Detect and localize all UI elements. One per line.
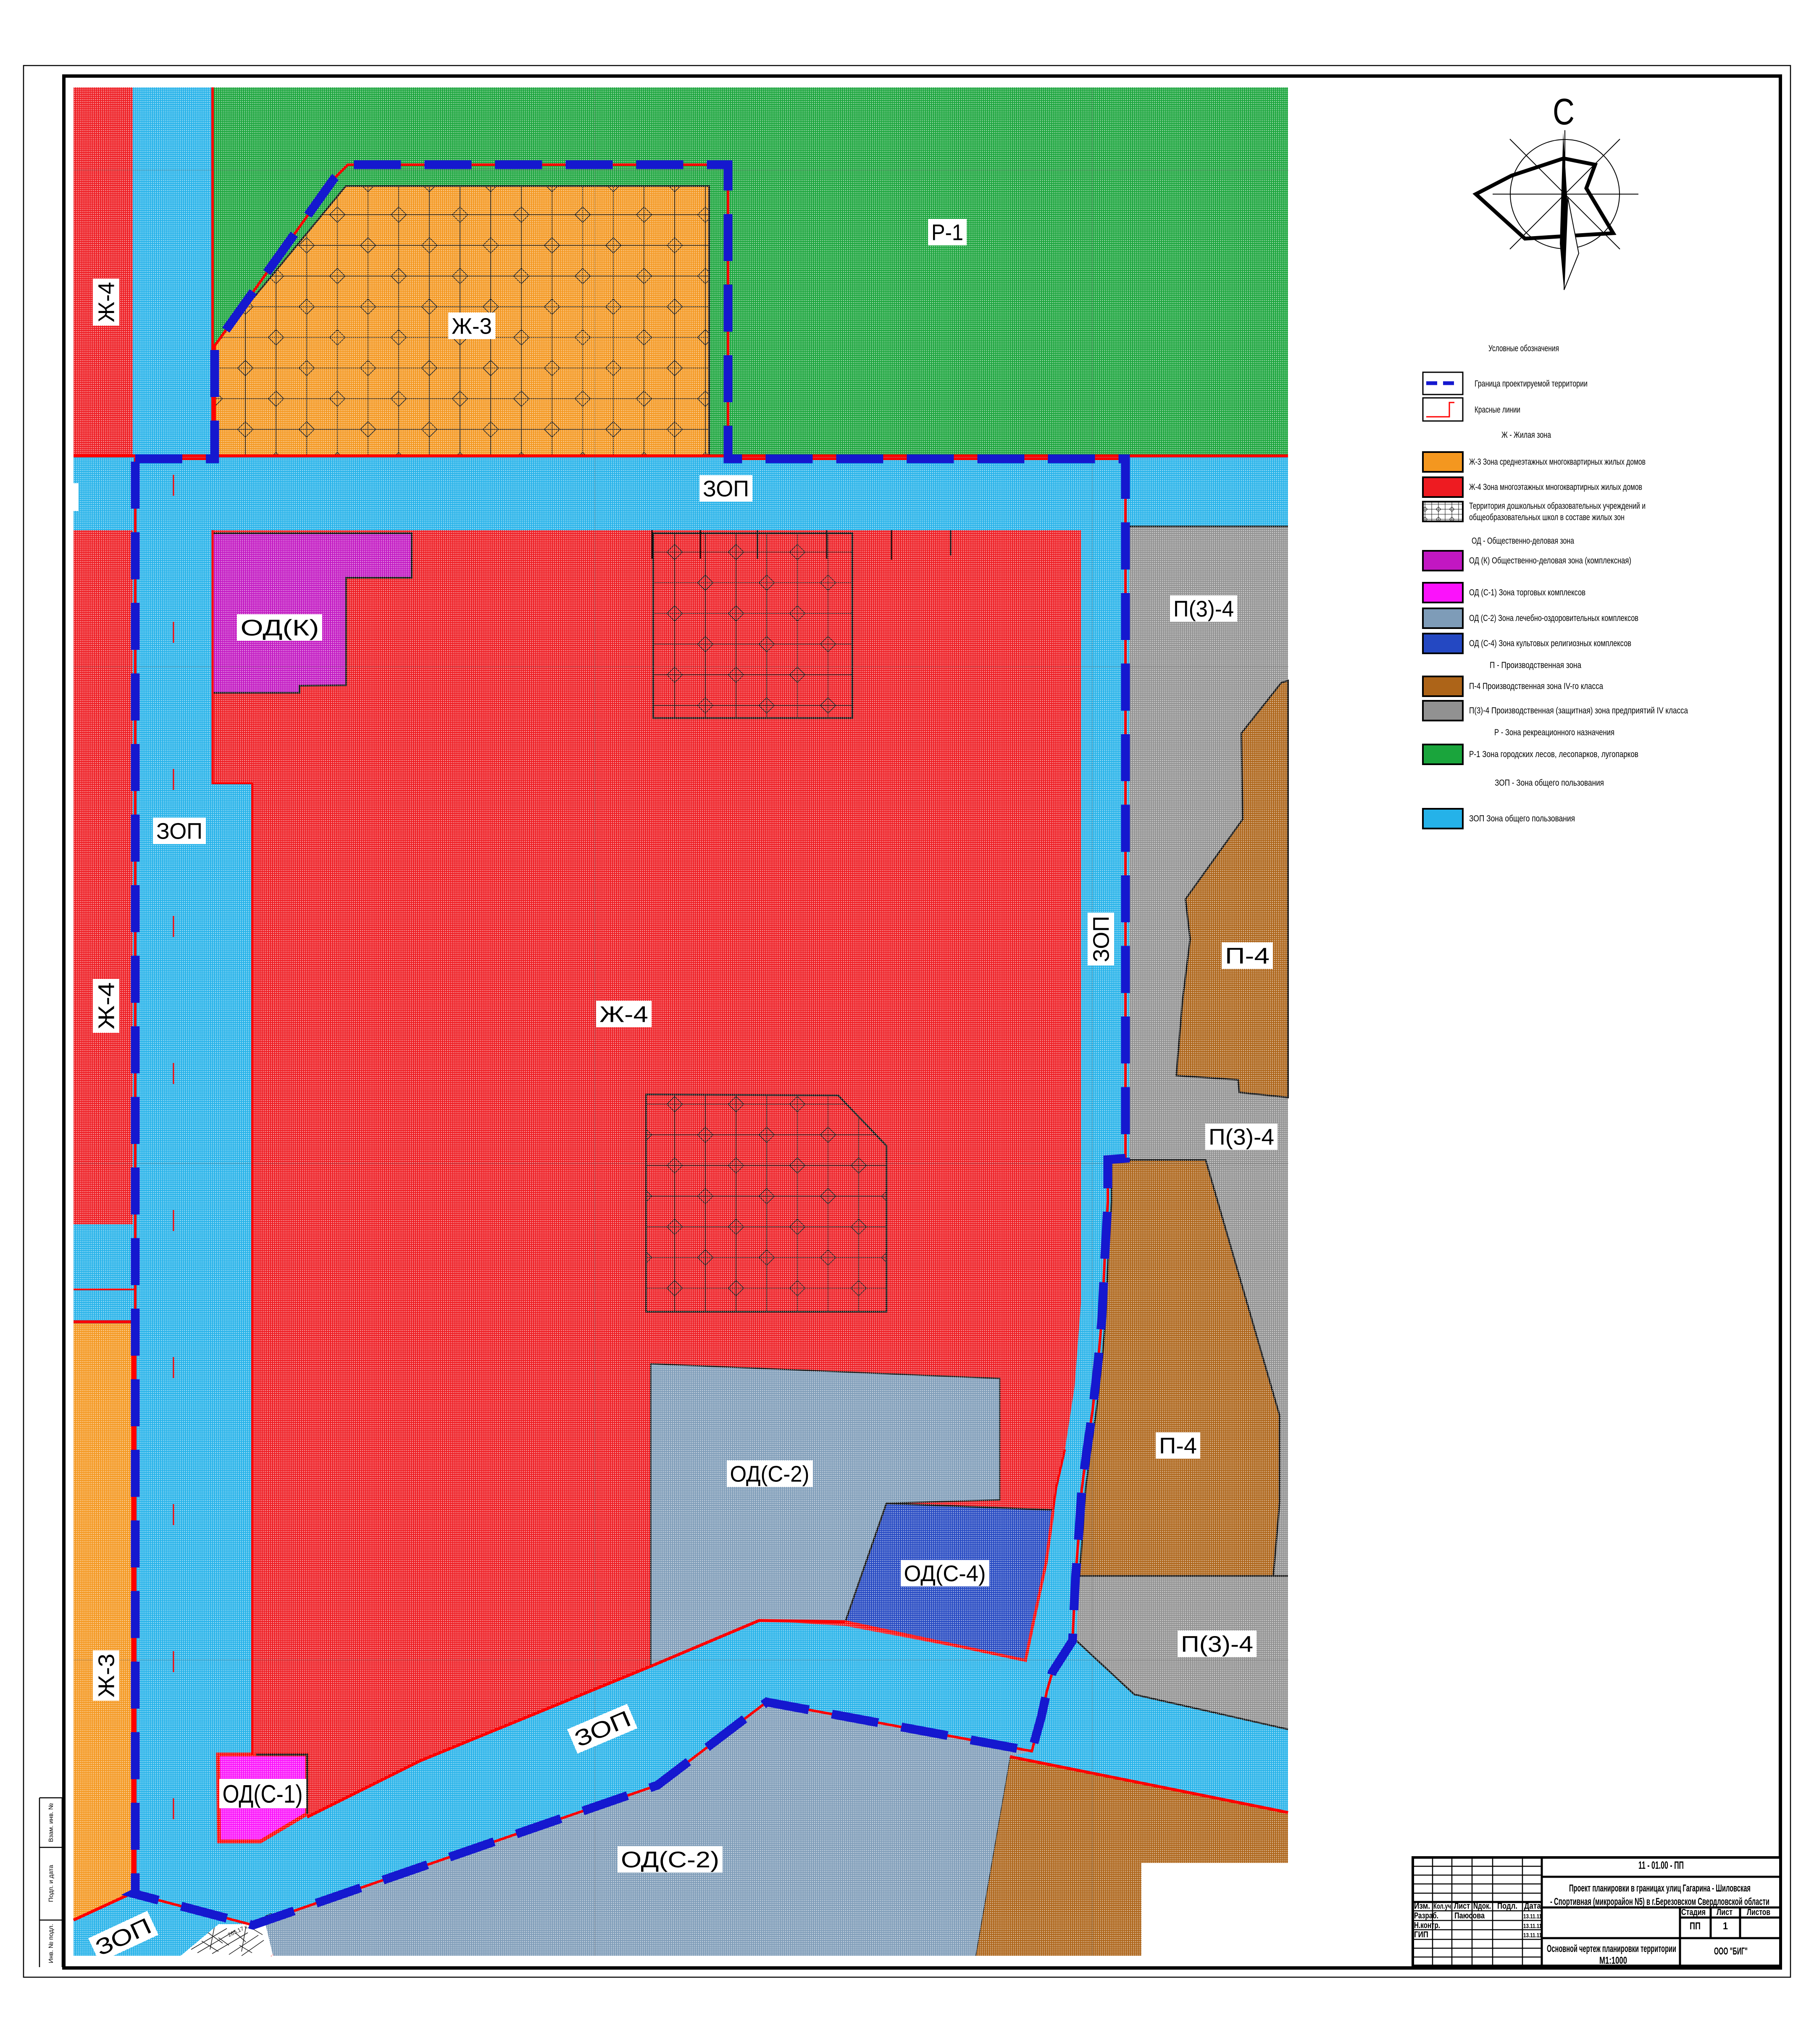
svg-text:Условные обозначения: Условные обозначения — [1488, 344, 1559, 353]
svg-text:ОД(К): ОД(К) — [241, 615, 319, 640]
svg-text:ОД(С-1): ОД(С-1) — [223, 1780, 303, 1808]
svg-text:ОД - Общественно-деловая зона: ОД - Общественно-деловая зона — [1472, 536, 1574, 546]
svg-text:ЗОП: ЗОП — [1088, 916, 1114, 962]
svg-text:Ж-4: Ж-4 — [599, 1002, 648, 1027]
svg-text:ОД(С-2): ОД(С-2) — [621, 1847, 719, 1872]
svg-text:13.11.11: 13.11.11 — [1523, 1913, 1542, 1920]
svg-text:Р-1: Р-1 — [931, 220, 963, 245]
svg-text:ОД(С-4): ОД(С-4) — [904, 1561, 986, 1586]
svg-text:Листов: Листов — [1747, 1907, 1770, 1917]
svg-text:П-4: П-4 — [1159, 1433, 1197, 1458]
svg-text:П - Производственная зона: П - Производственная зона — [1490, 660, 1581, 670]
svg-text:П(3)-4 Производственная (защит: П(3)-4 Производственная (защитная) зона … — [1469, 706, 1688, 716]
svg-text:- Спортивная (микрорайон N5) в: - Спортивная (микрорайон N5) в г.Березов… — [1550, 1896, 1769, 1907]
svg-text:Ж-3: Ж-3 — [452, 313, 492, 339]
svg-text:Р - Зона рекреационного назнач: Р - Зона рекреационного назначения — [1494, 728, 1614, 737]
svg-text:ГИП: ГИП — [1414, 1930, 1428, 1939]
svg-text:ОД (К) Общественно-деловая зо: ОД (К) Общественно-деловая зона (комплек… — [1469, 556, 1631, 566]
svg-text:Р-1 Зона городских лесов, лесо: Р-1 Зона городских лесов, лесопарков, лу… — [1469, 750, 1638, 759]
svg-text:П-4 Производственная зона IV-г: П-4 Производственная зона IV-го класса — [1469, 681, 1603, 691]
svg-text:ПП: ПП — [1690, 1920, 1701, 1932]
svg-text:ОД (С-4) Зона культовых религи: ОД (С-4) Зона культовых религиозных комп… — [1469, 639, 1631, 648]
svg-text:Ж-3: Ж-3 — [94, 1654, 119, 1697]
svg-text:ЗОП: ЗОП — [156, 818, 202, 844]
svg-text:Инв. № подл.: Инв. № подл. — [47, 1924, 55, 1963]
svg-text:ЗОП Зона общего пользования: ЗОП Зона общего пользования — [1469, 814, 1575, 823]
svg-text:Ж - Жилая зона: Ж - Жилая зона — [1501, 430, 1551, 440]
svg-text:Основной чертеж планировки тер: Основной чертеж планировки территории — [1547, 1943, 1676, 1955]
svg-text:П(3)-4: П(3)-4 — [1209, 1124, 1274, 1150]
svg-text:П(3)-4: П(3)-4 — [1181, 1631, 1253, 1657]
svg-text:Н.контр.: Н.контр. — [1414, 1921, 1440, 1930]
svg-text:Изм.: Изм. — [1414, 1902, 1430, 1911]
svg-text:общеобразовательных школ в сос: общеобразовательных школ в составе жилых… — [1469, 513, 1625, 522]
svg-text:13.11.11: 13.11.11 — [1523, 1932, 1542, 1939]
svg-text:Кол.уч: Кол.уч — [1433, 1902, 1451, 1910]
svg-text:11 - 01.00 - ПП: 11 - 01.00 - ПП — [1638, 1860, 1684, 1871]
svg-text:Дата: Дата — [1524, 1902, 1541, 1911]
svg-text:Красные линии: Красные линии — [1475, 405, 1520, 415]
svg-text:Подп. и дата: Подп. и дата — [47, 1865, 55, 1902]
svg-text:П(3)-4: П(3)-4 — [1173, 596, 1234, 621]
svg-text:Nдок.: Nдок. — [1473, 1902, 1491, 1911]
svg-text:C: C — [1553, 91, 1575, 132]
svg-text:Проект планировки в границах у: Проект планировки в границах улиц Гагари… — [1569, 1883, 1751, 1894]
svg-text:П-4: П-4 — [1225, 943, 1270, 968]
svg-text:Ж-4 Зона многоэтажных многоква: Ж-4 Зона многоэтажных многоквартирных жи… — [1469, 482, 1642, 492]
svg-text:Паюсова: Паюсова — [1454, 1911, 1485, 1920]
svg-text:ОД (С-1) Зона торговых комплек: ОД (С-1) Зона торговых комплексов — [1469, 588, 1585, 597]
svg-text:1: 1 — [1723, 1920, 1728, 1932]
svg-text:ЗОП - Зона общего пользовани: ЗОП - Зона общего пользования — [1495, 778, 1604, 788]
svg-text:Стадия: Стадия — [1681, 1907, 1706, 1917]
svg-text:Граница проектируемой территор: Граница проектируемой территории — [1475, 379, 1588, 389]
svg-text:ЗОП: ЗОП — [703, 476, 749, 501]
svg-text:Взам. инв. №: Взам. инв. № — [47, 1803, 55, 1842]
svg-text:Разраб.: Разраб. — [1414, 1911, 1438, 1920]
svg-text:Ж-4: Ж-4 — [94, 982, 119, 1029]
svg-text:Территория дошкольных образова: Территория дошкольных образовательных уч… — [1469, 501, 1646, 511]
svg-text:М1:1000: М1:1000 — [1599, 1955, 1627, 1966]
svg-text:13.11.11: 13.11.11 — [1523, 1923, 1542, 1930]
svg-text:ООО "БИГ": ООО "БИГ" — [1714, 1946, 1748, 1957]
svg-text:Ж-3 Зона среднеэтажных многокв: Ж-3 Зона среднеэтажных многоквартирных ж… — [1469, 457, 1646, 467]
svg-text:Ж-4: Ж-4 — [94, 282, 119, 322]
svg-text:ОД(С-2): ОД(С-2) — [730, 1461, 810, 1486]
svg-text:Лист: Лист — [1454, 1902, 1470, 1911]
svg-text:Подл.: Подл. — [1497, 1902, 1517, 1911]
svg-text:Лист: Лист — [1717, 1907, 1733, 1917]
svg-text:ОД (С-2) Зона лечебно-оздорови: ОД (С-2) Зона лечебно-оздоровительных ко… — [1469, 613, 1638, 623]
